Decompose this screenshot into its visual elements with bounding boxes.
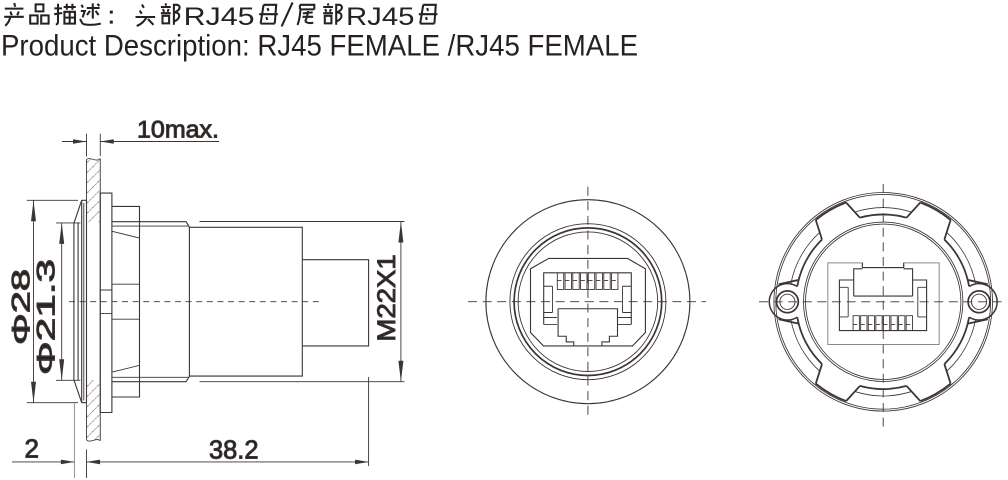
svg-text:RJ45: RJ45 (184, 3, 255, 31)
svg-text:2: 2 (25, 433, 39, 463)
svg-text:10max.: 10max. (137, 117, 219, 144)
svg-text:Product Description: RJ45 FEMA: Product Description: RJ45 FEMALE /RJ45 F… (1, 30, 638, 63)
svg-text:RJ45: RJ45 (346, 3, 415, 31)
svg-text:Φ21.3: Φ21.3 (33, 259, 61, 375)
svg-text:Φ28: Φ28 (8, 269, 36, 345)
svg-text:38.2: 38.2 (209, 435, 259, 465)
svg-text:M22X1: M22X1 (373, 254, 401, 341)
